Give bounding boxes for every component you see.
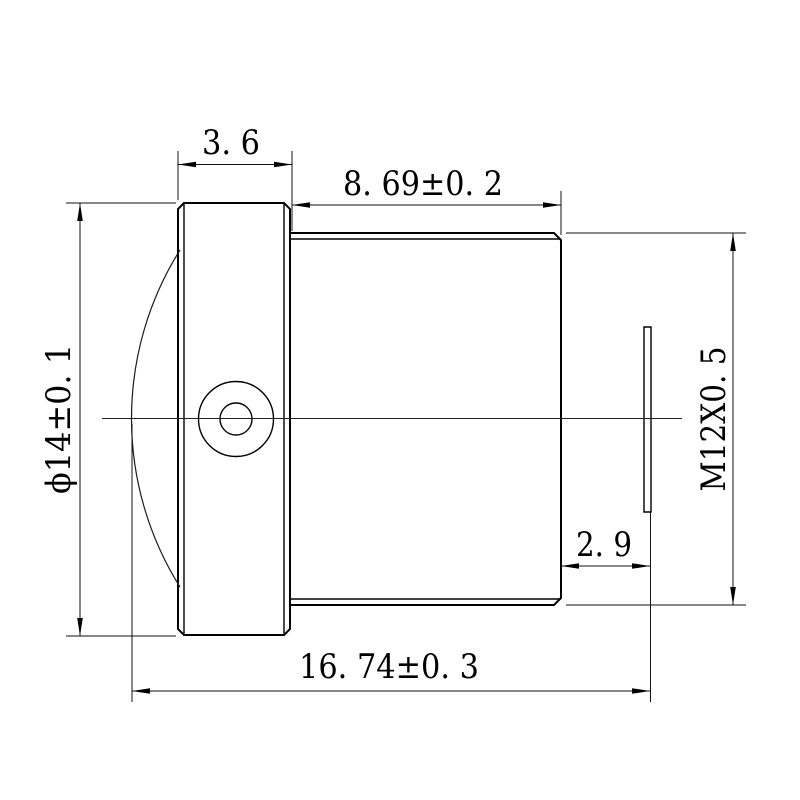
dimension-overall-length: 16. 74±0. 3 bbox=[132, 424, 651, 702]
dimension-front-diameter: ϕ14±0. 1 bbox=[39, 203, 176, 636]
dimension-label-overall-length: 16. 74±0. 3 bbox=[299, 647, 479, 687]
technical-drawing-canvas: 3. 6 8. 69±0. 2 ϕ14±0. 1 M12X0. 5 2. 9 bbox=[0, 0, 800, 800]
dimension-label-front-diameter: ϕ14±0. 1 bbox=[39, 344, 79, 494]
dimension-label-thread-spec: M12X0. 5 bbox=[694, 347, 734, 492]
rear-plate-outline bbox=[644, 327, 651, 512]
dimension-label-barrel-length: 8. 69±0. 2 bbox=[343, 164, 503, 204]
m12-lens-technical-drawing: 3. 6 8. 69±0. 2 ϕ14±0. 1 M12X0. 5 2. 9 bbox=[0, 0, 800, 800]
dimension-rear-offset: 2. 9 bbox=[561, 525, 650, 566]
dimension-label-front-cap-width: 3. 6 bbox=[202, 123, 260, 163]
dimension-barrel-length: 8. 69±0. 2 bbox=[292, 164, 561, 235]
dimension-label-rear-offset: 2. 9 bbox=[576, 525, 632, 565]
dimension-front-cap-width: 3. 6 bbox=[178, 123, 292, 231]
lens-body bbox=[102, 203, 682, 635]
